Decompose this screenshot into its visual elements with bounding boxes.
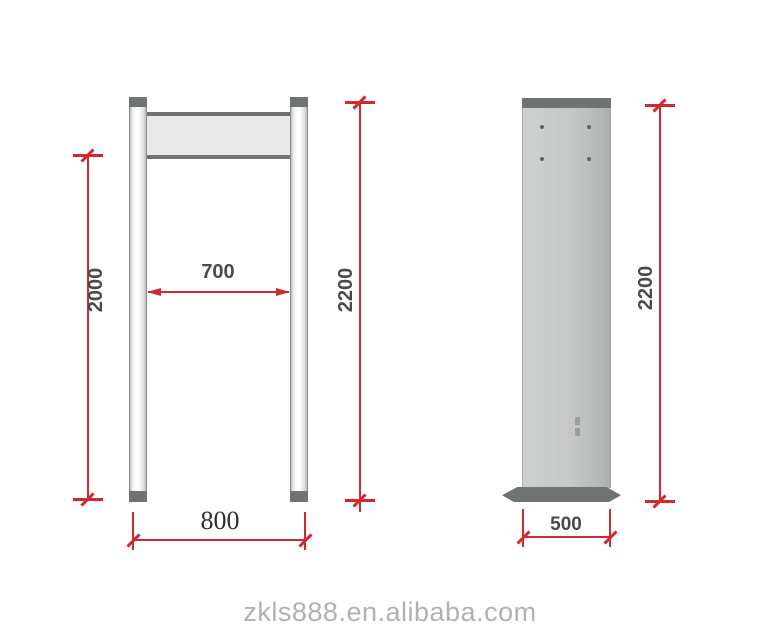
dim-arrow-right <box>276 288 290 296</box>
dim-extension <box>132 512 134 550</box>
dimensional-drawing: 2000 700 2200 800 <box>0 0 780 640</box>
pillar-top-cap <box>129 97 147 107</box>
screw-dot <box>540 157 544 161</box>
column-body <box>522 108 611 488</box>
dim-line <box>133 539 305 541</box>
screw-dot <box>587 125 591 129</box>
pillar-bottom-cap <box>290 491 308 502</box>
dim-arrow-left <box>147 288 161 296</box>
dim-line <box>523 536 610 538</box>
dim-line <box>359 102 361 512</box>
column-top-cap <box>522 98 611 108</box>
front-left-pillar <box>129 97 147 502</box>
gate-crossbar <box>147 112 290 159</box>
dim-extension <box>522 509 524 547</box>
watermark-text: zkls888.en.alibaba.com <box>0 597 780 628</box>
dim-line <box>87 155 89 500</box>
pillar-bottom-cap <box>129 491 147 502</box>
dim-extension <box>609 509 611 547</box>
front-total-height-label: 2200 <box>335 267 357 313</box>
front-right-pillar <box>290 97 308 502</box>
column-base-plate <box>502 487 621 502</box>
screw-dot <box>587 157 591 161</box>
column-sticker-mark <box>575 417 580 436</box>
base-width-label: 800 <box>190 507 250 535</box>
pillar-top-cap <box>290 97 308 107</box>
passage-height-label: 2000 <box>85 267 107 313</box>
inner-width-label: 700 <box>193 261 243 283</box>
dim-extension <box>304 512 306 550</box>
screw-dot <box>540 125 544 129</box>
side-total-height-label: 2200 <box>635 265 657 311</box>
dim-line <box>659 105 661 502</box>
depth-label: 500 <box>536 514 596 536</box>
dim-line <box>148 291 289 293</box>
